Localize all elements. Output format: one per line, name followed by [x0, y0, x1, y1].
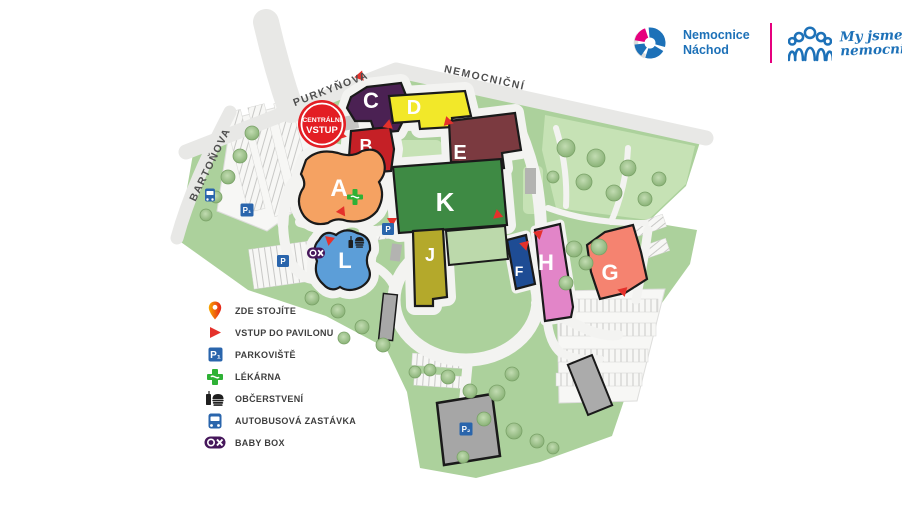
building-j: J [413, 229, 447, 306]
building-k-label: K [436, 187, 455, 217]
bus-stop-icon [205, 189, 215, 202]
svg-text:VSTUP: VSTUP [306, 125, 338, 136]
people-group-icon [788, 24, 832, 62]
parking-icon-p2: P₂ [460, 423, 473, 436]
building-k-wing [446, 226, 508, 265]
refreshment-icon [204, 391, 226, 406]
brand-header: Nemocnice Náchod My jsme nemocnice [627, 18, 902, 68]
building-j-label: J [425, 245, 435, 265]
campus-map: C D B A E K J L [0, 0, 902, 507]
building-h-label: H [538, 250, 554, 275]
legend-item-pharmacy: LÉKÁRNA [204, 369, 356, 384]
legend-label: BABY BOX [235, 438, 285, 448]
hospital-name: Nemocnice Náchod [683, 28, 750, 58]
building-a-label: A [330, 175, 347, 202]
brand-slogan-line2: nemocnice [840, 42, 902, 59]
pharmacy-cross-icon [204, 369, 226, 385]
you-are-here-pin-icon [204, 301, 226, 320]
baby-box-icon [204, 436, 226, 449]
building-j-shape [413, 229, 447, 306]
legend-item-baby-box: BABY BOX [204, 435, 356, 450]
central-entrance-badge: CENTRÁLNÍ VSTUP [298, 100, 346, 148]
map-legend: ZDE STOJÍTE VSTUP DO PAVILONU P₁ PARKOVI… [204, 303, 356, 450]
parking-icon-p1: P₁ [241, 204, 254, 217]
baby-box-icon [307, 248, 325, 259]
svg-text:P₁: P₁ [210, 350, 221, 361]
hospital-campus-map-page: C D B A E K J L [0, 0, 902, 507]
svg-text:P₂: P₂ [462, 425, 471, 434]
hospital-name-line2: Náchod [683, 43, 750, 58]
parking-sign-icon: P₁ [204, 347, 226, 362]
svg-text:P₁: P₁ [243, 206, 252, 215]
bus-stop-icon [204, 413, 226, 429]
svg-text:CENTRÁLNÍ: CENTRÁLNÍ [302, 115, 342, 124]
legend-item-parking: P₁ PARKOVIŠTĚ [204, 347, 356, 362]
svg-text:P: P [280, 257, 286, 266]
legend-item-you-are-here: ZDE STOJÍTE [204, 303, 356, 318]
brand-slogan: My jsme nemocnice [839, 27, 902, 58]
building-l-label: L [338, 248, 351, 273]
legend-label: LÉKÁRNA [235, 372, 281, 382]
brand-divider [770, 23, 772, 63]
legend-label: VSTUP DO PAVILONU [235, 328, 334, 338]
legend-item-bus-stop: AUTOBUSOVÁ ZASTÁVKA [204, 413, 356, 428]
building-d-label: D [407, 97, 421, 119]
legend-label: OBČERSTVENÍ [235, 394, 303, 404]
legend-item-refreshment: OBČERSTVENÍ [204, 391, 356, 406]
parking-icon: P [382, 223, 394, 235]
parking-icon: P [277, 255, 289, 267]
svg-text:P: P [385, 225, 391, 234]
hospital-name-line1: Nemocnice [683, 28, 750, 43]
pavilion-entrance-triangle-icon [204, 326, 226, 339]
legend-item-pavilion-entrance: VSTUP DO PAVILONU [204, 325, 356, 340]
building-f-label: F [515, 263, 524, 279]
building-g-label: G [601, 260, 618, 285]
building-c-label: C [363, 88, 379, 113]
legend-label: ZDE STOJÍTE [235, 306, 296, 316]
hospital-logo-icon [627, 20, 673, 66]
legend-label: AUTOBUSOVÁ ZASTÁVKA [235, 416, 356, 426]
legend-label: PARKOVIŠTĚ [235, 350, 296, 360]
